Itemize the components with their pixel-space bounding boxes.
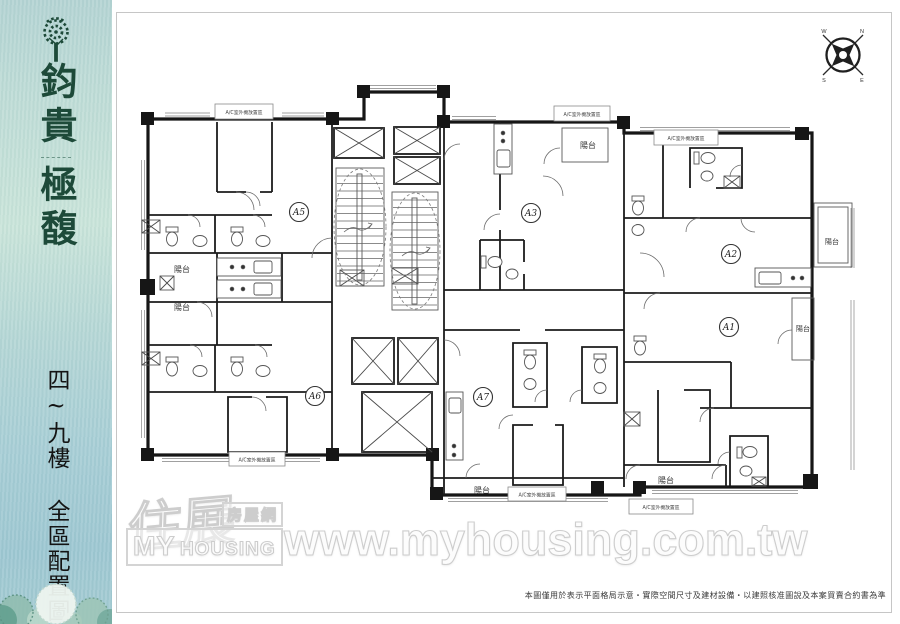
floorplan-drawing: A/C室外機放置區 A/C室外機放置區 A/C室外機放置區 A/C室外機放置區 …: [0, 0, 900, 624]
floorplan-page: 鈞貴 極馥 四~九樓 全區配置圖 N W S E: [0, 0, 900, 624]
unit-label-a1: A1: [722, 323, 735, 333]
unit-label-a6: A6: [308, 392, 321, 402]
balcony-label: 陽台: [580, 140, 596, 150]
ac-boxes: A/C室外機放置區 A/C室外機放置區 A/C室外機放置區 A/C室外機放置區 …: [215, 104, 718, 514]
ac-label: A/C室外機放置區: [642, 504, 679, 511]
kitchen-fixtures: [217, 124, 811, 460]
ac-label: A/C室外機放置區: [667, 135, 704, 142]
stairwell-right: [390, 192, 440, 310]
balcony-label: 陽台: [174, 264, 190, 274]
balcony-label: 陽台: [174, 302, 190, 312]
balcony-label: 陽台: [474, 485, 490, 495]
balcony-labels: 陽台 陽台 陽台 陽台 陽台 陽台 陽台: [174, 140, 839, 495]
door-arcs: [188, 144, 792, 479]
unit-label-a7: A7: [476, 393, 489, 403]
ac-label: A/C室外機放置區: [518, 492, 555, 499]
balcony-label: 陽台: [796, 324, 810, 333]
unit-label-a3: A3: [524, 209, 537, 219]
disclaimer-text: 本圖僅用於表示平面格局示意‧實際空間尺寸及建材設備‧以建照核准圖說及本案買賣合約…: [525, 590, 886, 601]
ac-label: A/C室外機放置區: [225, 109, 262, 116]
unit-label-a5: A5: [292, 208, 305, 218]
ac-label: A/C室外機放置區: [238, 457, 275, 464]
stairwell-left: [334, 168, 386, 286]
unit-label-a2: A2: [724, 250, 737, 260]
balcony-label: 陽台: [825, 237, 839, 246]
balcony-label: 陽台: [658, 475, 674, 485]
ac-label: A/C室外機放置區: [563, 111, 600, 118]
